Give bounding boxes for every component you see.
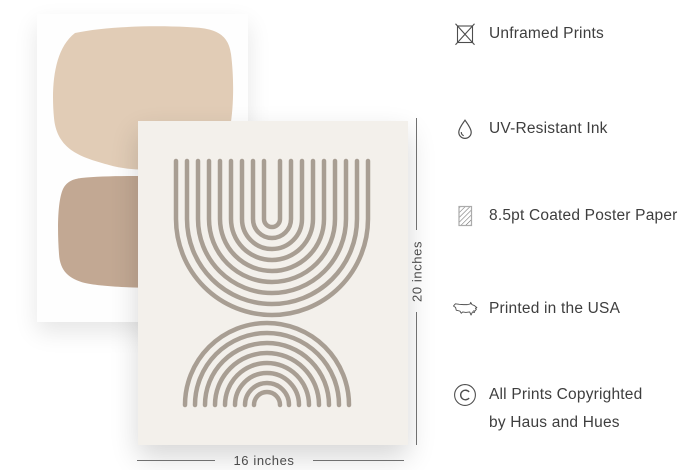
height-dimension-line-top — [416, 118, 417, 230]
product-infographic: 20 inches 16 inches Unframed Prints — [0, 0, 679, 470]
unframed-icon — [452, 21, 478, 47]
feature-printed-usa: Printed in the USA — [452, 295, 620, 323]
width-dimension-line-left — [137, 460, 215, 461]
feature-uv-ink: UV-Resistant Ink — [452, 115, 608, 143]
width-dimension-label: 16 inches — [215, 453, 313, 468]
drop-icon — [452, 116, 478, 142]
usa-map-icon — [452, 296, 478, 322]
feature-paper: 8.5pt Coated Poster Paper — [452, 202, 678, 230]
height-dimension-line-bottom — [416, 312, 417, 445]
feature-label: Unframed Prints — [489, 20, 604, 48]
feature-label: UV-Resistant Ink — [489, 115, 608, 143]
feature-copyright: All Prints Copyrighted by Haus and Hues — [452, 381, 642, 437]
feature-label: 8.5pt Coated Poster Paper — [489, 202, 678, 230]
feature-label-line2: by Haus and Hues — [489, 414, 620, 431]
arches-line-art — [138, 121, 408, 445]
front-poster — [138, 121, 408, 445]
copyright-icon — [452, 382, 478, 408]
paper-icon — [452, 203, 478, 229]
feature-unframed: Unframed Prints — [452, 20, 604, 48]
height-dimension-label: 20 inches — [403, 238, 431, 304]
feature-label: All Prints Copyrighted by Haus and Hues — [489, 381, 642, 437]
feature-label-line1: All Prints Copyrighted — [489, 386, 642, 403]
feature-label: Printed in the USA — [489, 295, 620, 323]
width-dimension-line-right — [313, 460, 404, 461]
